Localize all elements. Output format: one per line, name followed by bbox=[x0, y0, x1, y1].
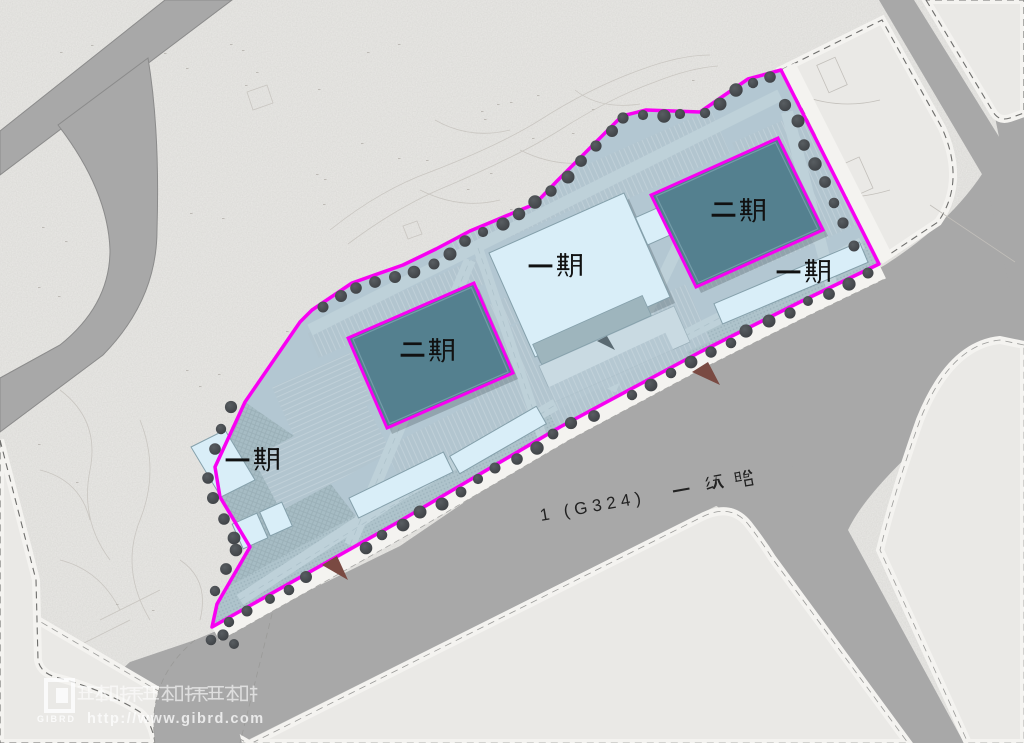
svg-text:GIBRD: GIBRD bbox=[37, 714, 76, 724]
svg-text:http://www.gibrd.com: http://www.gibrd.com bbox=[87, 711, 265, 727]
